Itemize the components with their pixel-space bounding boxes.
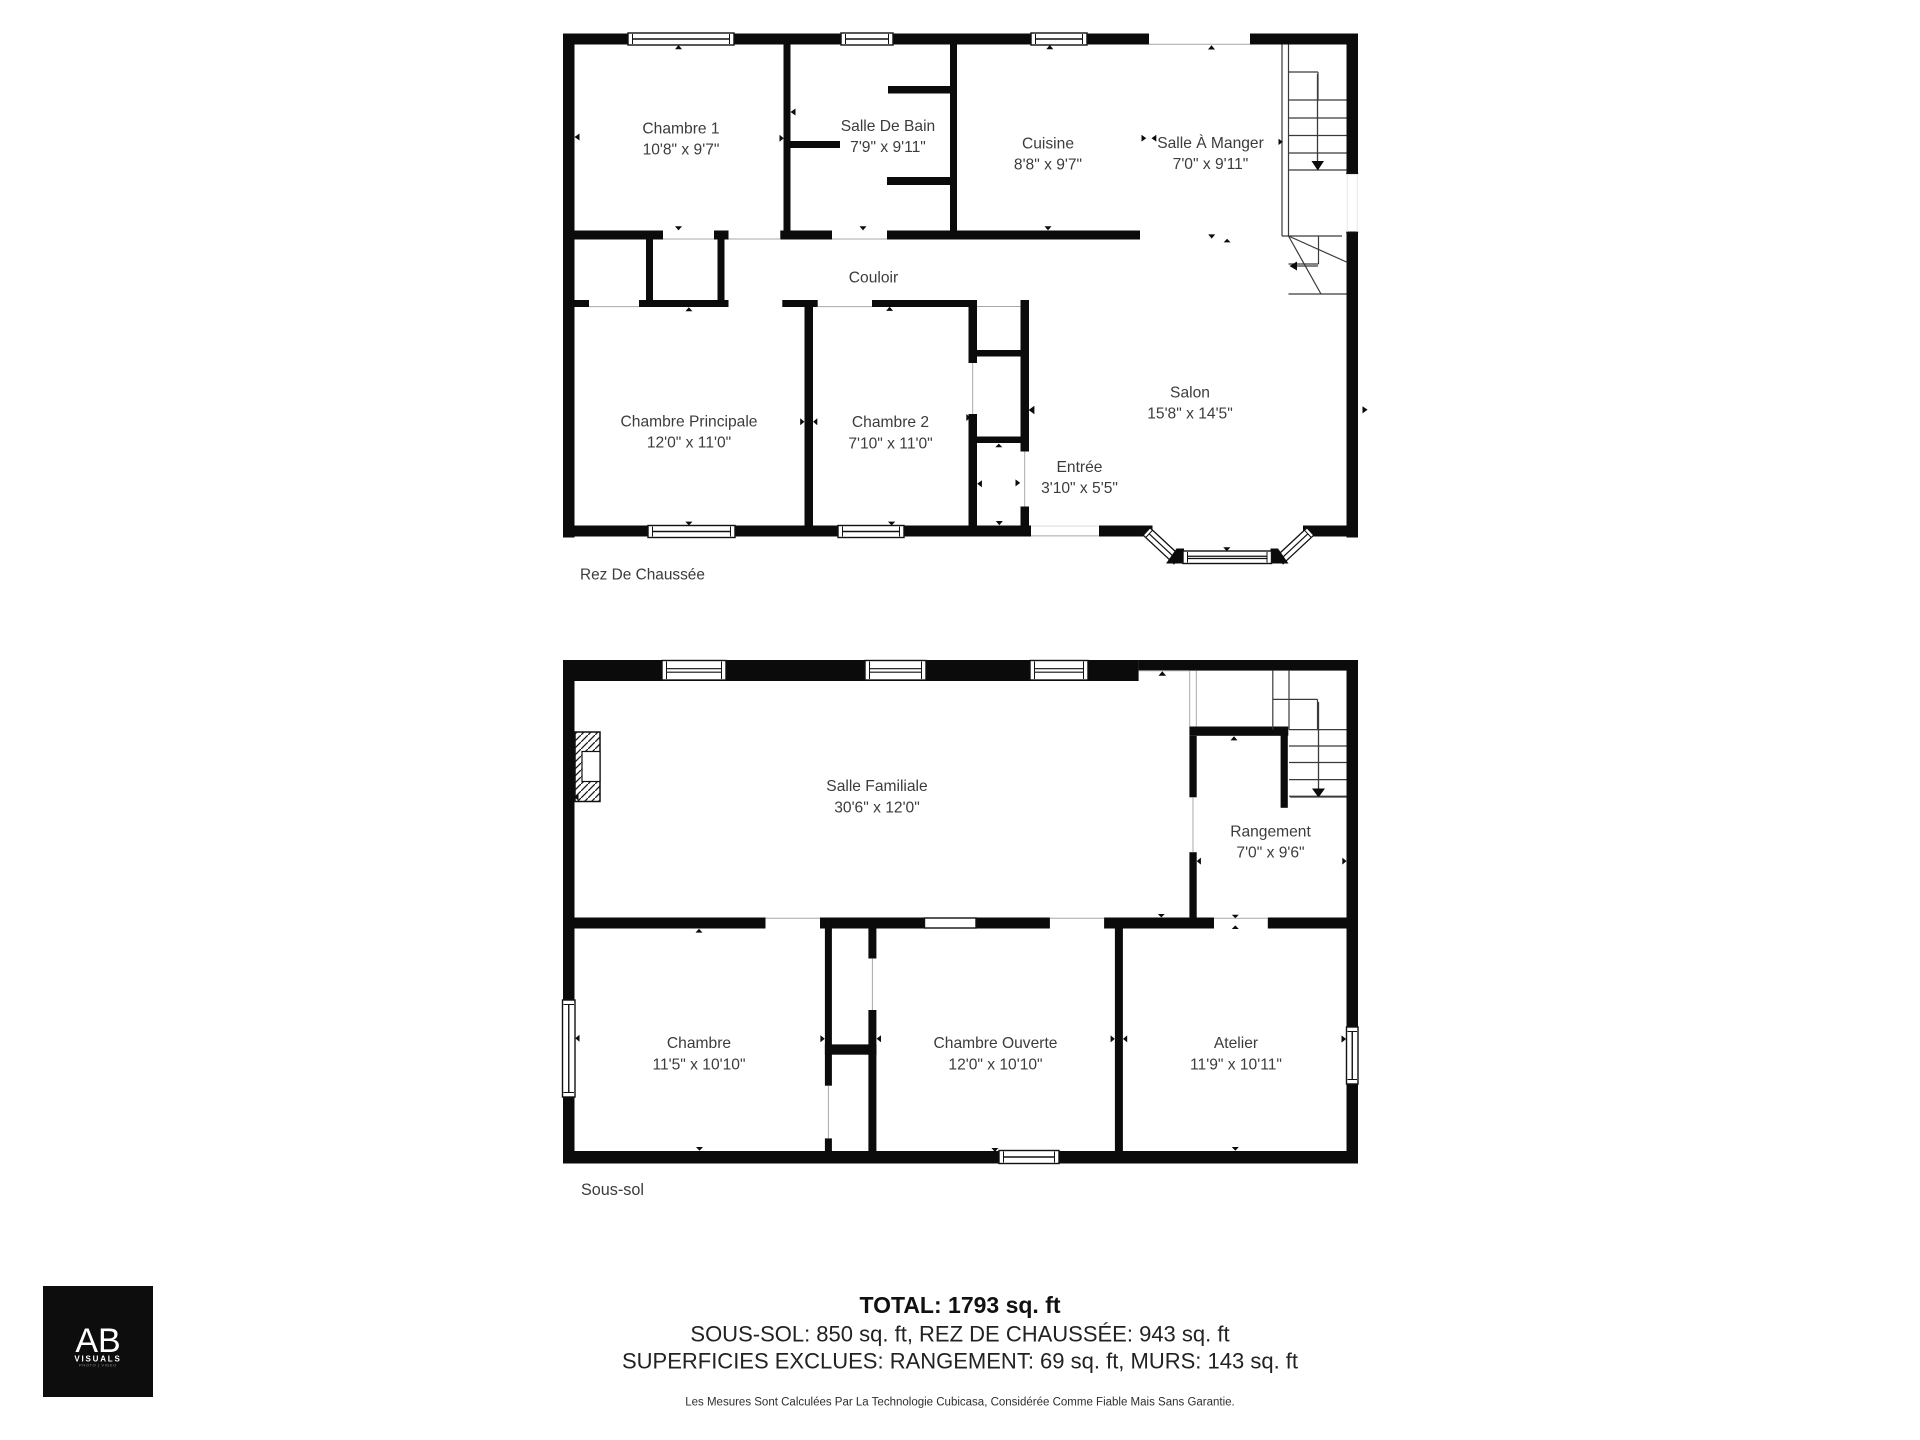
svg-text:15'8" x 14'5": 15'8" x 14'5" bbox=[1147, 406, 1233, 423]
svg-text:12'0" x 10'10": 12'0" x 10'10" bbox=[948, 1057, 1042, 1074]
svg-text:11'9" x 10'11": 11'9" x 10'11" bbox=[1190, 1057, 1282, 1074]
svg-text:Sous-sol: Sous-sol bbox=[581, 1181, 644, 1199]
svg-text:10'8" x 9'7": 10'8" x 9'7" bbox=[643, 142, 720, 159]
svg-text:7'0" x 9'6": 7'0" x 9'6" bbox=[1236, 845, 1304, 862]
svg-text:Cuisine: Cuisine bbox=[1022, 136, 1074, 153]
svg-text:Couloir: Couloir bbox=[849, 270, 898, 287]
svg-text:Atelier: Atelier bbox=[1214, 1035, 1258, 1052]
svg-text:PHOTO | VIDEO: PHOTO | VIDEO bbox=[79, 1363, 117, 1368]
svg-text:7'10" x 11'0": 7'10" x 11'0" bbox=[848, 436, 932, 453]
svg-text:Chambre 1: Chambre 1 bbox=[642, 121, 719, 138]
svg-text:3'10" x 5'5": 3'10" x 5'5" bbox=[1041, 480, 1118, 497]
svg-text:11'5" x 10'10": 11'5" x 10'10" bbox=[652, 1057, 745, 1074]
svg-text:Rangement: Rangement bbox=[1230, 824, 1311, 841]
svg-text:7'9" x 9'11": 7'9" x 9'11" bbox=[850, 139, 926, 156]
svg-text:Salle Familiale: Salle Familiale bbox=[826, 778, 927, 795]
svg-text:Salle De Bain: Salle De Bain bbox=[841, 118, 935, 135]
svg-text:Chambre: Chambre bbox=[667, 1035, 731, 1052]
svg-text:SUPERFICIES EXCLUES: RANGEMENT: SUPERFICIES EXCLUES: RANGEMENT: 69 sq. f… bbox=[622, 1349, 1298, 1374]
svg-text:Entrée: Entrée bbox=[1057, 459, 1103, 476]
svg-text:Chambre Principale: Chambre Principale bbox=[621, 414, 758, 431]
svg-text:Salle À Manger: Salle À Manger bbox=[1157, 133, 1264, 152]
svg-text:7'0" x 9'11": 7'0" x 9'11" bbox=[1173, 156, 1249, 173]
svg-text:Salon: Salon bbox=[1170, 385, 1210, 402]
svg-text:Rez De Chaussée: Rez De Chaussée bbox=[580, 567, 705, 584]
svg-text:TOTAL: 1793 sq. ft: TOTAL: 1793 sq. ft bbox=[859, 1292, 1060, 1318]
svg-text:30'6" x 12'0": 30'6" x 12'0" bbox=[834, 800, 920, 817]
svg-text:Chambre Ouverte: Chambre Ouverte bbox=[934, 1035, 1058, 1052]
svg-text:8'8" x 9'7": 8'8" x 9'7" bbox=[1014, 157, 1082, 174]
svg-text:Les Mesures Sont Calculées Par: Les Mesures Sont Calculées Par La Techno… bbox=[685, 1397, 1235, 1409]
svg-text:12'0" x 11'0": 12'0" x 11'0" bbox=[647, 435, 731, 452]
svg-text:SOUS-SOL: 850 sq. ft, REZ DE C: SOUS-SOL: 850 sq. ft, REZ DE CHAUSSÉE: 9… bbox=[690, 1322, 1229, 1347]
svg-text:Chambre 2: Chambre 2 bbox=[852, 414, 929, 431]
